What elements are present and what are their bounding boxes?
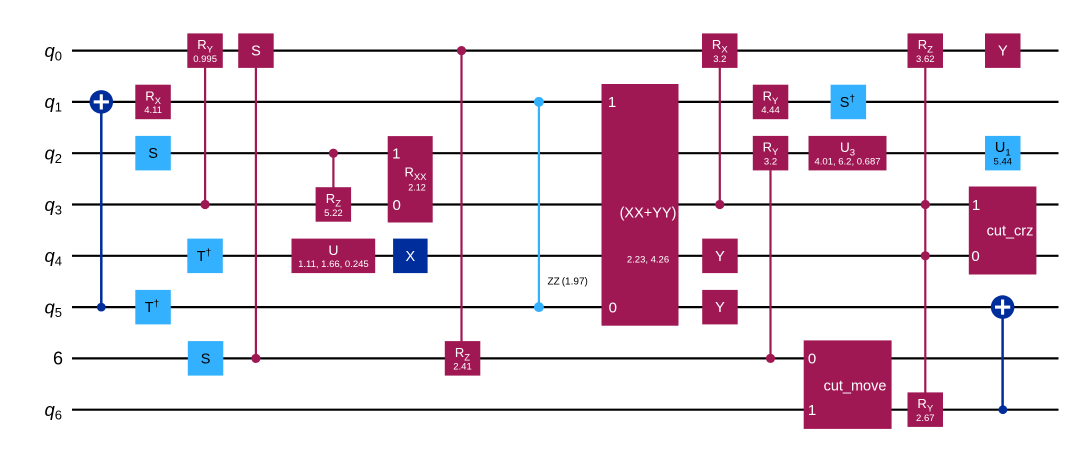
svg-text:(XX+YY): (XX+YY) (620, 206, 677, 222)
svg-text:5.44: 5.44 (994, 157, 1013, 168)
svg-text:S: S (148, 146, 158, 162)
svg-text:4.44: 4.44 (761, 105, 780, 116)
svg-text:Y: Y (998, 44, 1008, 60)
svg-text:cut_move: cut_move (824, 379, 887, 395)
svg-text:S: S (201, 351, 211, 367)
svg-text:3.62: 3.62 (916, 54, 935, 65)
svg-text:X: X (405, 249, 415, 265)
svg-text:4.01, 6.2, 0.687: 4.01, 6.2, 0.687 (814, 157, 880, 168)
svg-text:6: 6 (53, 349, 63, 369)
svg-text:3.2: 3.2 (764, 157, 777, 168)
svg-text:Y: Y (715, 300, 725, 316)
svg-text:cut_crz: cut_crz (987, 223, 1034, 239)
svg-text:1: 1 (972, 197, 980, 214)
svg-text:0: 0 (393, 197, 401, 214)
svg-text:2.41: 2.41 (453, 362, 472, 373)
svg-text:1.11, 1.66, 0.245: 1.11, 1.66, 0.245 (298, 259, 369, 270)
svg-text:0: 0 (808, 351, 816, 368)
svg-text:1: 1 (808, 402, 816, 419)
svg-text:0.995: 0.995 (193, 54, 217, 65)
svg-text:0: 0 (609, 299, 617, 316)
svg-text:2.23, 4.26: 2.23, 4.26 (627, 254, 669, 265)
svg-text:1: 1 (608, 94, 616, 111)
svg-text:U: U (328, 242, 338, 258)
svg-text:ZZ (1.97): ZZ (1.97) (548, 276, 588, 287)
svg-text:5.22: 5.22 (324, 208, 343, 219)
svg-text:1: 1 (392, 146, 400, 163)
svg-text:3.2: 3.2 (713, 54, 726, 65)
svg-text:S: S (251, 44, 261, 60)
svg-text:Y: Y (715, 249, 725, 265)
svg-text:2.12: 2.12 (408, 183, 426, 193)
svg-text:0: 0 (971, 248, 979, 265)
svg-text:2.67: 2.67 (916, 413, 935, 424)
svg-text:4.11: 4.11 (144, 105, 162, 116)
